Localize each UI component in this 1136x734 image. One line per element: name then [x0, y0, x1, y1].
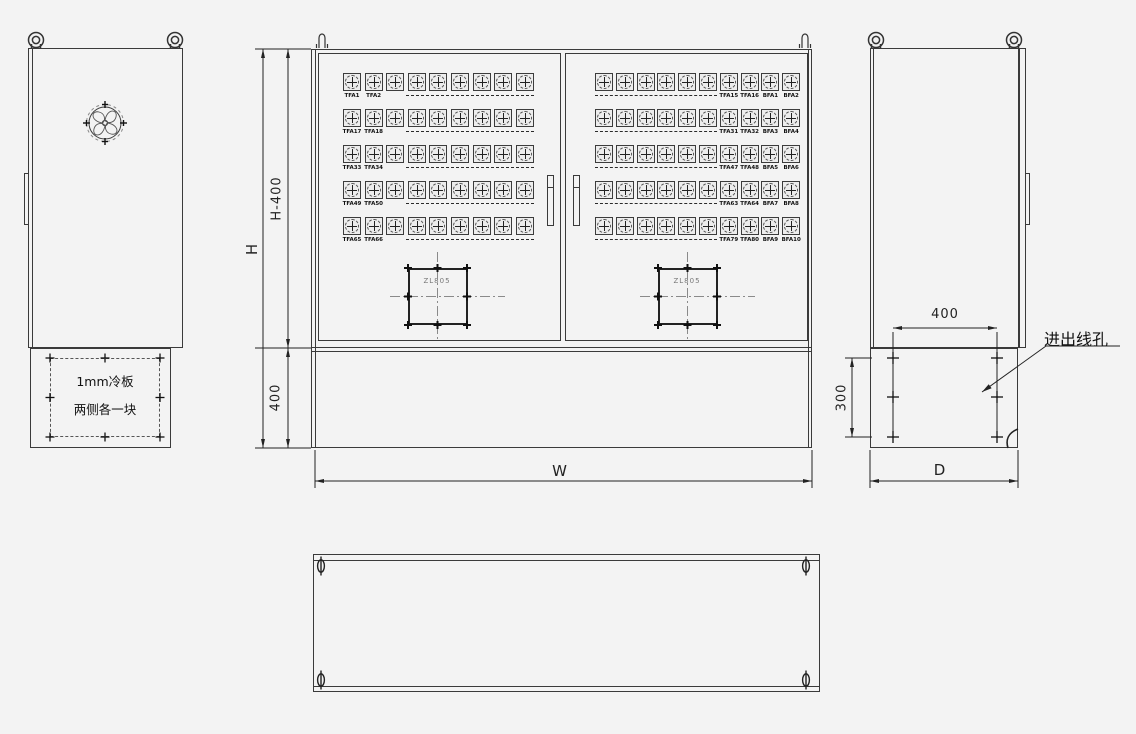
lifting-eye-icons: [29, 33, 1022, 49]
dimension-arrowheads: [261, 49, 1018, 483]
corner-fillet-arc: [1007, 429, 1018, 448]
cabinet-engineering-drawing: 1mm冷板 两侧各一块 TFA1TFA2TFA15TFA16BFA1BFA2TF…: [0, 0, 1136, 734]
top-view-eye-icons: [318, 557, 810, 690]
gland-centerlines: [390, 252, 755, 342]
drawing-linework-overlay: [0, 0, 1136, 734]
position-cross-marks: [46, 352, 1004, 443]
front-lifting-pin-icons: [317, 34, 811, 48]
fan-icon: [83, 101, 127, 145]
